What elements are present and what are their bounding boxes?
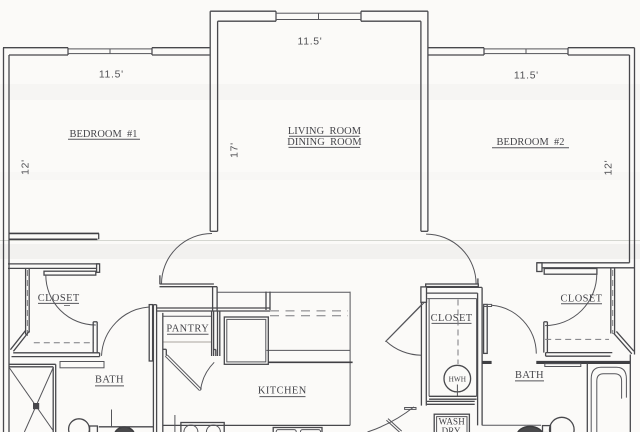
svg-text:11.5': 11.5' (298, 36, 323, 47)
svg-text:LIVING ROOM: LIVING ROOM (288, 126, 361, 137)
svg-text:BATH: BATH (515, 370, 544, 381)
svg-text:CLOSET: CLOSET (431, 313, 473, 324)
svg-text:HWH: HWH (449, 375, 467, 384)
svg-text:11.5': 11.5' (514, 71, 539, 82)
svg-text:PANTRY: PANTRY (166, 324, 209, 335)
svg-text:BATH: BATH (95, 375, 124, 386)
svg-text:KITCHEN: KITCHEN (258, 386, 307, 397)
svg-text:WASH: WASH (439, 416, 466, 426)
svg-text:12': 12' (604, 160, 615, 176)
svg-text:11.5': 11.5' (99, 70, 124, 81)
svg-text:DRY.: DRY. (442, 426, 462, 432)
svg-text:CLOSET: CLOSET (561, 293, 603, 304)
svg-text:DINING ROOM: DINING ROOM (287, 137, 361, 148)
svg-text:17': 17' (230, 142, 241, 158)
svg-text:BEDROOM #2: BEDROOM #2 (496, 137, 564, 148)
svg-text:12': 12' (21, 159, 32, 175)
svg-text:BEDROOM #1: BEDROOM #1 (69, 129, 137, 140)
svg-text:CLOSET: CLOSET (38, 293, 80, 304)
